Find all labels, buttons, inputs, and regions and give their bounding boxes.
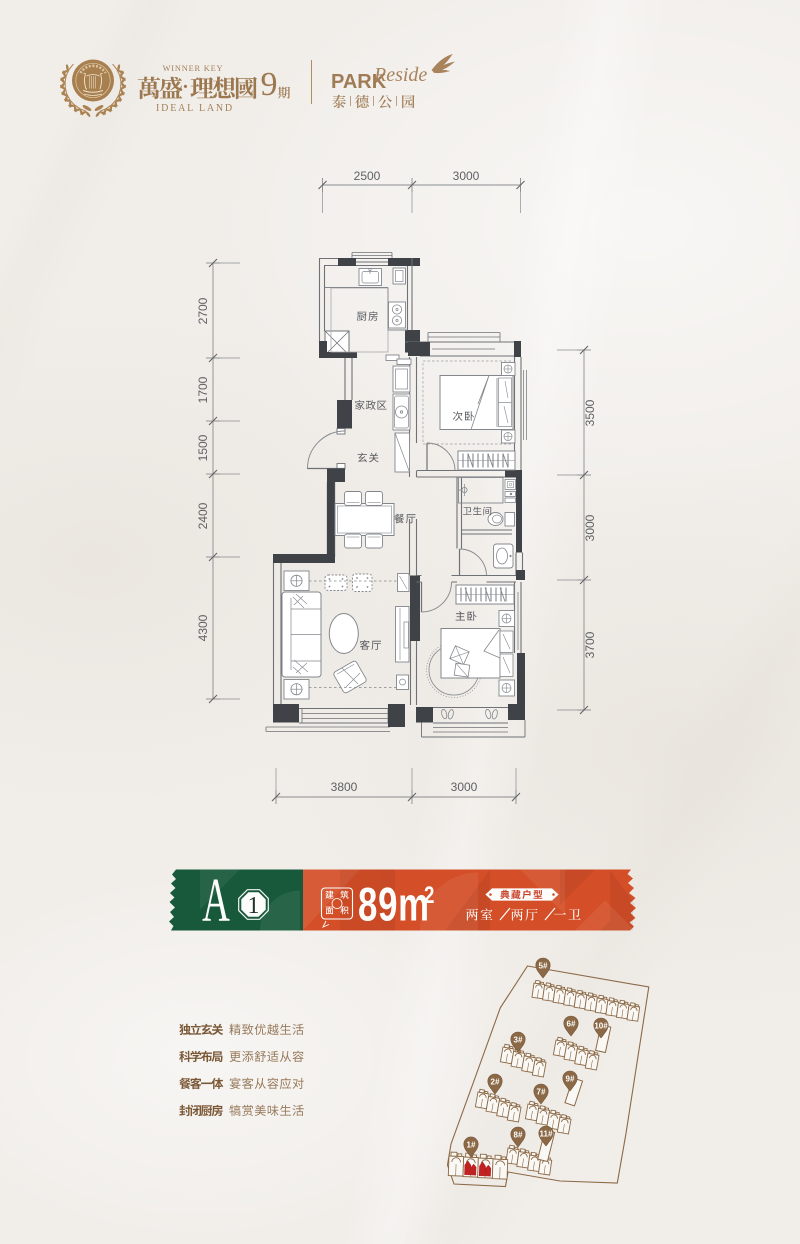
svg-text:89m: 89m [358, 878, 430, 930]
svg-text:5#: 5# [539, 962, 548, 971]
svg-text:WINNER KEY: WINNER KEY [163, 64, 224, 73]
svg-text:2400: 2400 [196, 502, 210, 529]
svg-text:7#: 7# [537, 1088, 546, 1097]
svg-text:Reside: Reside [373, 64, 427, 86]
svg-text:3800: 3800 [331, 780, 358, 794]
svg-text:3000: 3000 [583, 514, 597, 541]
svg-text:2: 2 [424, 882, 434, 909]
svg-text:1700: 1700 [196, 376, 210, 403]
svg-text:2700: 2700 [196, 297, 210, 324]
svg-text:10#: 10# [594, 1022, 608, 1031]
svg-text:9#: 9# [566, 1075, 575, 1084]
svg-text:3000: 3000 [451, 780, 478, 794]
svg-text:2500: 2500 [354, 169, 381, 183]
svg-text:6#: 6# [567, 1020, 576, 1029]
svg-text:·: · [182, 76, 189, 98]
svg-text:11#: 11# [540, 1130, 553, 1139]
svg-text:3500: 3500 [583, 399, 597, 426]
svg-text:9: 9 [261, 66, 278, 103]
svg-text:3000: 3000 [453, 169, 480, 183]
svg-text:1: 1 [248, 893, 260, 919]
svg-text:IDEAL LAND: IDEAL LAND [156, 103, 234, 114]
svg-text:1500: 1500 [196, 434, 210, 461]
svg-text:3#: 3# [514, 1036, 523, 1045]
svg-text:4300: 4300 [196, 614, 210, 641]
svg-text:8#: 8# [514, 1131, 523, 1140]
svg-text:1#: 1# [467, 1141, 476, 1150]
svg-text:2#: 2# [491, 1078, 500, 1087]
svg-text:3700: 3700 [583, 631, 597, 658]
svg-text:A: A [202, 867, 230, 936]
